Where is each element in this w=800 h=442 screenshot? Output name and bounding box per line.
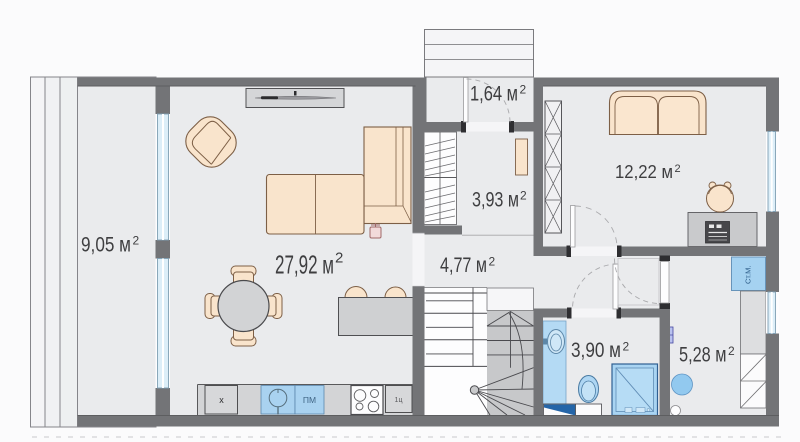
svg-text:2: 2 <box>335 250 343 267</box>
svg-text:4,77 м: 4,77 м <box>440 254 487 277</box>
svg-text:2: 2 <box>623 340 630 354</box>
svg-text:2: 2 <box>520 83 527 97</box>
svg-text:2: 2 <box>675 163 681 175</box>
svg-text:ПМ: ПМ <box>303 395 316 405</box>
svg-text:2: 2 <box>489 255 496 269</box>
svg-text:2: 2 <box>728 344 735 358</box>
svg-text:3,93 м: 3,93 м <box>472 188 519 212</box>
svg-text:5,28 м: 5,28 м <box>679 343 727 367</box>
svg-text:2: 2 <box>520 189 527 203</box>
svg-text:12,22 м: 12,22 м <box>615 161 673 182</box>
svg-text:1,64 м: 1,64 м <box>470 82 518 106</box>
svg-text:2: 2 <box>133 234 140 248</box>
svg-text:1ц: 1ц <box>395 397 403 404</box>
svg-text:Ст.М.: Ст.М. <box>744 266 753 284</box>
svg-text:х: х <box>219 395 224 405</box>
svg-text:3,90 м: 3,90 м <box>571 339 621 362</box>
svg-text:27,92 м: 27,92 м <box>275 250 334 280</box>
svg-text:9,05 м: 9,05 м <box>81 234 131 257</box>
